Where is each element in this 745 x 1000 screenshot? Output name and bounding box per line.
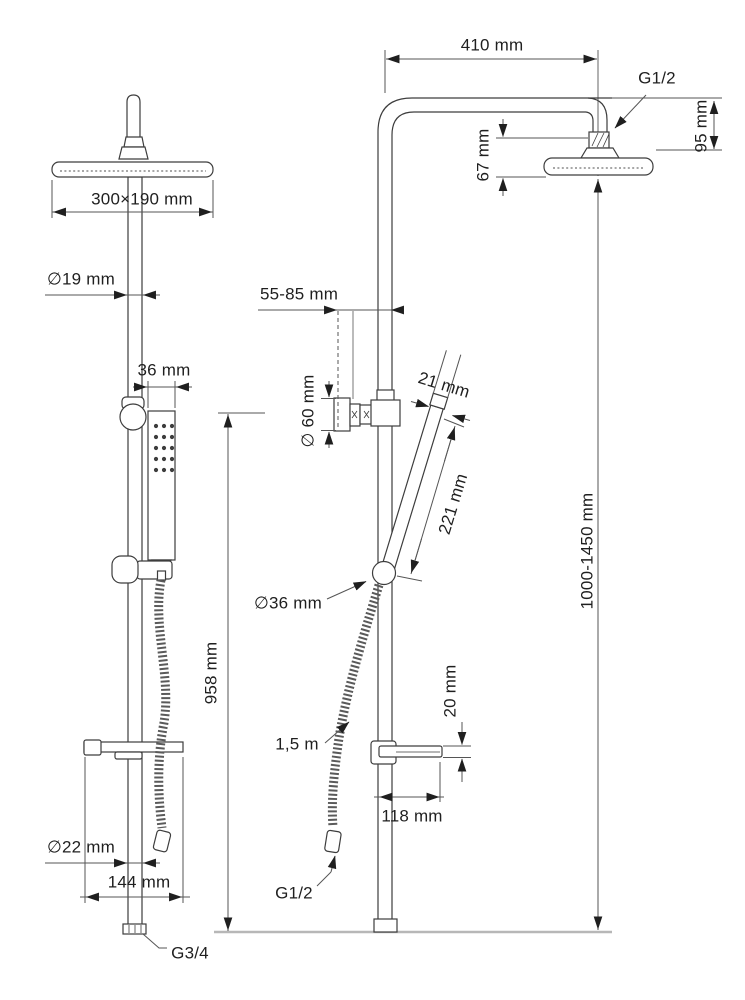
riser-pipe-front [128, 177, 142, 925]
leader-g34 [143, 934, 167, 948]
pipe-clamp [371, 400, 400, 426]
dim-label-shelf-thickness: 20 mm [442, 665, 459, 718]
thread-label-top: G1/2 [638, 70, 676, 87]
dim-118 [374, 762, 444, 802]
bottom-connector-front [123, 924, 146, 934]
shelf-side [379, 746, 442, 757]
label-hose-length: 1,5 m [275, 736, 319, 753]
base-connector-side [374, 919, 397, 932]
shower-hose-front [159, 580, 166, 828]
side-view [324, 50, 653, 932]
head-flange-side [581, 148, 619, 158]
shelf-end-cap-front [84, 740, 101, 755]
overhead-shower-front [52, 162, 213, 177]
dim-20 [443, 722, 471, 782]
dim-label-lower-pipe-dia: ∅22 mm [47, 839, 115, 856]
wand-hose-neck-front [158, 571, 166, 580]
shelf-bracket-front [115, 752, 142, 759]
dim-410 [385, 50, 597, 93]
head-collar-upper-front [124, 137, 144, 147]
leader-g12-top [615, 95, 646, 128]
head-collar-lower-front [119, 147, 148, 159]
hand-shower-front [148, 411, 175, 560]
dim-label-slider-dia: ∅36 mm [254, 595, 322, 612]
dim-label-wand-body: 36 mm [138, 362, 191, 379]
dim-label-upper-pipe-dia: ∅19 mm [47, 271, 115, 288]
dim-label-bracket-dia: ∅ 60 mm [300, 375, 317, 448]
slider-hub [373, 562, 396, 585]
top-pipe-front [127, 95, 140, 140]
overhead-shower-side [544, 158, 653, 175]
shower-hose-side [332, 585, 379, 827]
pipe-clamp-notch [377, 390, 394, 401]
dim-label-shelf-depth: 118 mm [381, 808, 442, 825]
dim-label-head-to-arm: 95 mm [693, 100, 710, 153]
leader-g12-bottom-2 [331, 856, 335, 872]
dim-label-column-height: 1000-1450 mm [579, 493, 596, 610]
wall-plate [334, 398, 350, 431]
hose-nozzle-front [153, 830, 171, 853]
slider-clamp-front [137, 561, 172, 579]
technical-drawing-page: 410 mm G1/2 95 mm 67 mm 300×190 mm ∅19 m… [0, 0, 745, 1000]
arm-elbow-inner [392, 112, 414, 135]
dim-label-head-size: 300×190 mm [91, 191, 193, 208]
slider-knob-front [112, 556, 138, 583]
arm-right-elbow-inner [586, 112, 593, 132]
arm-elbow-outer [378, 98, 412, 132]
dim-label-shelf-width: 144 mm [108, 874, 171, 891]
leader-hub-dia [327, 582, 366, 600]
dim-label-wall-distance: 55-85 mm [260, 286, 338, 303]
front-view [52, 95, 213, 934]
hose-connector-side [324, 830, 341, 853]
slider-holder-ring-front [120, 404, 146, 430]
thread-label-bottom: G3/4 [171, 945, 209, 962]
dim-label-head-drop: 67 mm [475, 129, 492, 182]
dim-label-bar-height: 958 mm [203, 642, 220, 705]
dim-label-arm-reach: 410 mm [461, 37, 524, 54]
hand-shower-side [382, 405, 443, 570]
leader-g12-bottom-1 [317, 872, 331, 886]
dim-958 [218, 413, 265, 931]
thread-label-hose: G1/2 [275, 885, 313, 902]
